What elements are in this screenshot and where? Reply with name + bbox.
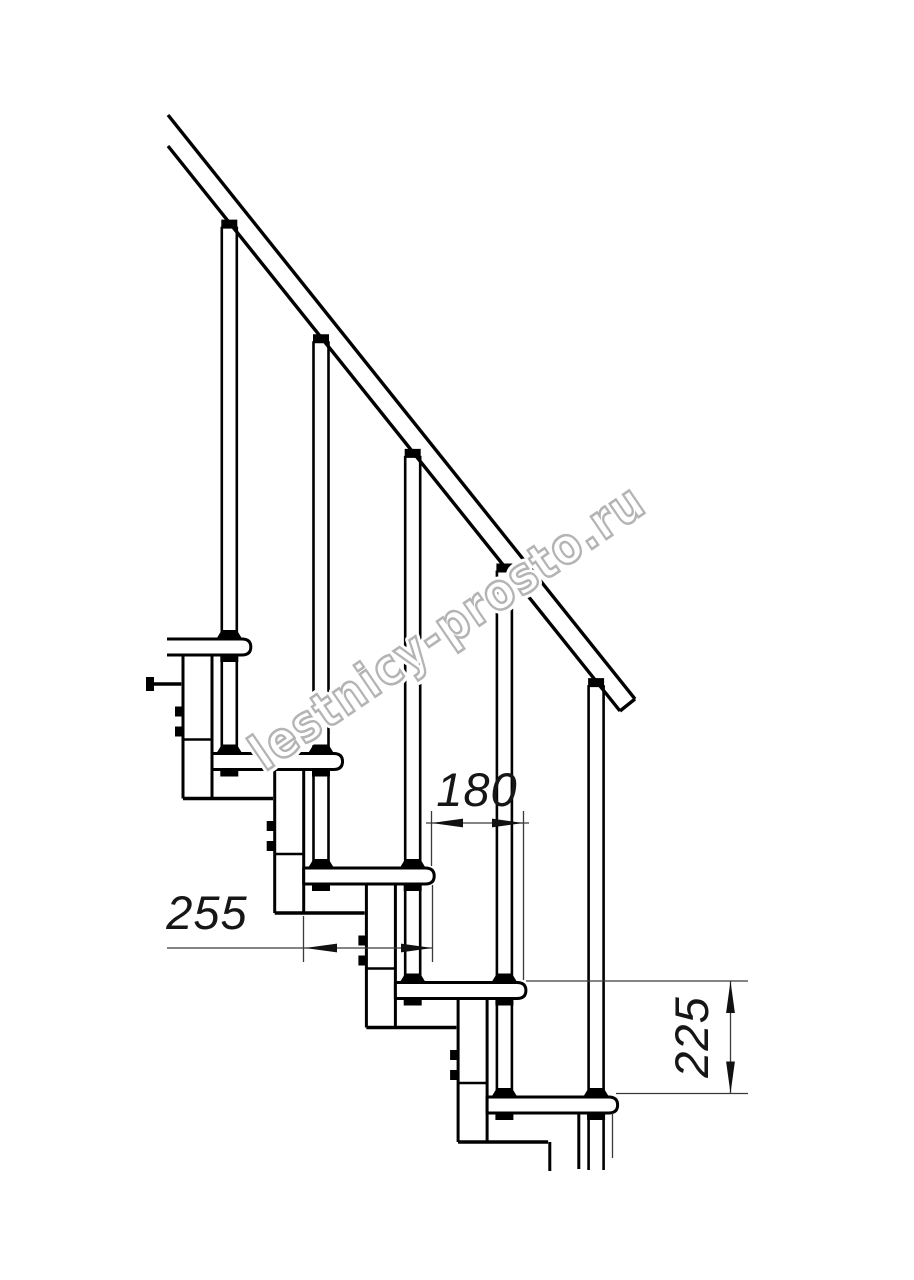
stringer-box-fill [366,884,395,1028]
dimension-label-180: 180 [436,763,517,816]
arrowhead-right [401,944,433,953]
stringer-box-fill [183,655,212,799]
dimension-step-overlap: 180 [426,763,529,980]
arrowhead-left [305,944,337,953]
bolt-tab [175,727,183,737]
baluster-rail-cap [221,220,237,229]
baluster-collar [583,1088,609,1097]
bolt-tab [175,707,183,717]
stringer-box-fill [458,999,487,1143]
tread [167,639,251,655]
bolt-tab [267,821,275,831]
tread [304,868,435,884]
bolt-tab [267,841,275,851]
bolt-tab [358,956,366,966]
baluster-foot [216,745,242,754]
drawing-page: 180 255 225 lestnicy-prost [0,0,914,1280]
arrowhead-up [726,981,735,1013]
baluster-rail-cap [405,449,421,458]
arrowhead-right [492,819,524,828]
baluster-collar [216,630,242,639]
baluster-rail-cap [588,678,604,687]
baluster-nut [312,884,330,891]
dimension-label-255: 255 [165,886,247,939]
bolt-tab [358,936,366,946]
watermark-text: lestnicy-prosto.ru [239,472,656,782]
bolt-tab [146,677,154,691]
watermark: lestnicy-prosto.ru lestnicy-prosto.ru [239,472,656,782]
tread [395,983,526,999]
stringer-box-fill [550,1113,579,1171]
tread [487,1097,617,1113]
stair-technical-drawing: 180 255 225 lestnicy-prost [0,0,914,1280]
baluster-collar [491,974,517,983]
baluster-foot [308,859,334,868]
baluster-foot [400,974,426,983]
baluster-rail-cap [313,334,329,343]
bolt-tab [450,1070,458,1080]
dimension-label-225: 225 [665,996,718,1078]
baluster-nut [404,999,422,1006]
baluster-nut [220,770,238,777]
baluster-foot [491,1088,517,1097]
baluster-collar [400,859,426,868]
stringer-box-fill [275,770,304,914]
baluster-nut [495,1113,513,1120]
arrowhead-down [726,1062,735,1094]
arrowhead-left [432,819,464,828]
bolt-tab [450,1050,458,1060]
